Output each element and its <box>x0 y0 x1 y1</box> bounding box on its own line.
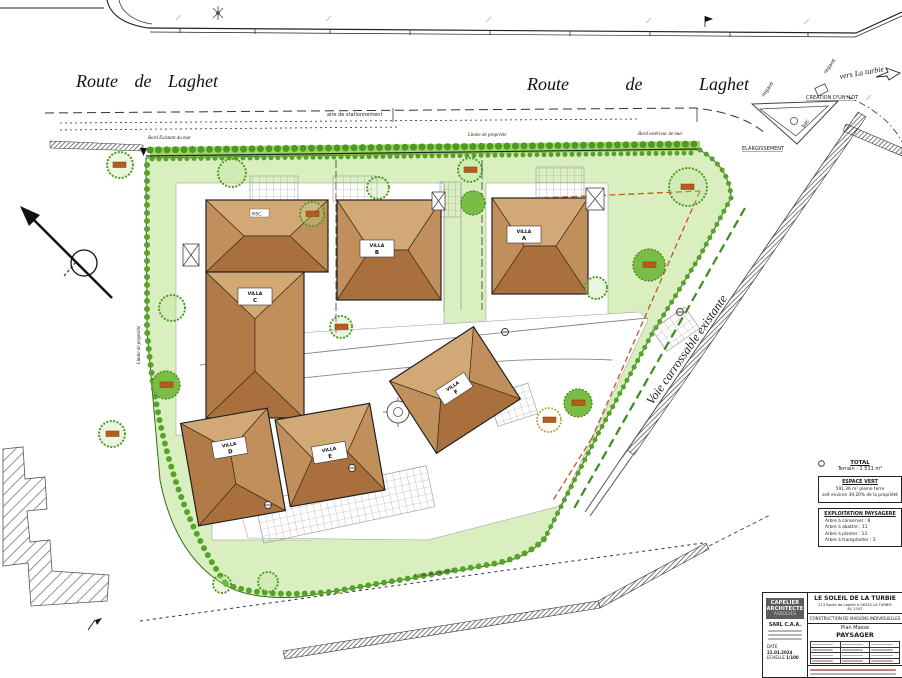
windmill-symbol <box>213 6 223 20</box>
svg-text:C: C <box>253 298 257 304</box>
project-header: LE SOLEIL DE LA TURBIE 213 Route de Lagh… <box>808 593 902 614</box>
villa-e: VILLA E <box>275 403 385 506</box>
legend-item: Arbre à transplanter : 3 <box>825 538 899 543</box>
vers-la-turbie-label: vers La turbie <box>839 64 885 81</box>
north-arrow <box>20 206 112 298</box>
regard-label-2: regard <box>823 58 837 75</box>
route-de-laghet-label-left: Route de Laghet <box>75 71 219 91</box>
villa-b: VILLA B <box>337 200 441 300</box>
svg-text:ELARGISSEMENT: ELARGISSEMENT <box>742 146 785 152</box>
project-ref: AC 1107 <box>809 607 901 611</box>
limite-propriete-left-label: Limite de propriété <box>137 325 142 365</box>
bord-existant-label: Bord Existant du mur <box>148 136 191 141</box>
svg-text:B: B <box>375 250 379 256</box>
svg-text:VILLA: VILLA <box>248 291 263 297</box>
svg-text:CREATION D'UN ILOT: CREATION D'UN ILOT <box>806 95 859 101</box>
phone-line <box>768 638 802 640</box>
villa-a-label: VILLA A <box>507 226 541 243</box>
existing-building-hatch <box>3 447 109 606</box>
flag-symbol <box>705 16 713 27</box>
title-block: CAPELIER ARCHITECTE ASSOCIES SARL C.A.A.… <box>762 592 902 678</box>
legend-panel: TOTAL Terrain : 1 511 m² ESPACE VERT 591… <box>818 460 902 552</box>
project-type: CONSTRUCTION DE MAISONS INDIVIDUELLES <box>808 614 902 624</box>
svg-text:VILLA: VILLA <box>370 243 385 249</box>
address-line <box>768 630 802 632</box>
villa-c-label: VILLA C <box>238 288 272 305</box>
date-scale-cell: DATE 21.01.2024 ECHELLE 1/100 <box>767 644 803 661</box>
site-plan-page: Route de Laghet Route de Laghet aire de … <box>0 0 902 678</box>
revision-row <box>811 659 899 664</box>
legend-item: Arbre à abattre : 11 <box>825 525 899 530</box>
legend-total-value: Terrain : 1 511 m² <box>818 466 902 472</box>
villa-a: VILLA A <box>492 198 588 294</box>
limite-propriete-top-label: Limite de propriété <box>467 133 507 138</box>
legend-item: Arbre à conserver : 8 <box>825 519 899 524</box>
project-column: LE SOLEIL DE LA TURBIE 213 Route de Lagh… <box>808 593 902 677</box>
regard-square-symbol <box>815 84 828 96</box>
route-de-laghet-label-right: Route de Laghet <box>526 74 750 94</box>
drawing-name: Plan Masse PAYSAGER <box>808 624 902 640</box>
aire-stationnement-label: aire de stationnement <box>327 112 382 118</box>
svg-text:A: A <box>522 236 527 242</box>
project-title: LE SOLEIL DE LA TURBIE <box>809 595 901 602</box>
parking-boundary-lines <box>45 108 766 134</box>
legend-item: Arbre à planter : 13 <box>825 532 899 537</box>
regard-circle-symbol <box>791 118 798 125</box>
fine-print <box>808 665 902 677</box>
site-plan-drawing: Route de Laghet Route de Laghet aire de … <box>0 0 902 678</box>
address-line <box>768 634 802 636</box>
wall-end-marker <box>140 148 147 156</box>
elargissement: ELARGISSEMENT <box>742 146 785 152</box>
regard-label-1: regard <box>761 81 775 98</box>
survey-flag <box>88 618 102 630</box>
espace-vert-title: ESPACE VERT <box>821 480 899 485</box>
svg-text:VILLA: VILLA <box>517 229 532 235</box>
creation-ilot: CREATION D'UN ILOT <box>806 95 859 101</box>
espace-vert-line2: soit environ 39,20% de la propriété <box>821 493 899 499</box>
company-name: SARL C.A.A. <box>769 623 801 628</box>
revision-table <box>810 641 900 664</box>
villa-b-label: VILLA B <box>360 240 394 257</box>
existing-wall-strip <box>50 141 143 151</box>
architect-column: CAPELIER ARCHITECTE ASSOCIES SARL C.A.A.… <box>763 593 808 677</box>
tree-transplant-icon <box>818 460 825 467</box>
exploitation-paysagere-box: EXPLOITATION PAYSAGERE Arbre à conserver… <box>818 508 902 548</box>
exploitation-title: EXPLOITATION PAYSAGERE <box>821 512 899 517</box>
espace-vert-box: ESPACE VERT 591,36 m² pleine terre soit … <box>818 476 902 503</box>
architect-logo: CAPELIER ARCHITECTE ASSOCIES <box>766 598 804 619</box>
legend-total: TOTAL Terrain : 1 511 m² <box>818 460 902 472</box>
pool-label: PISC. <box>252 212 262 217</box>
bord-exterieur-label: Bord extérieur de mur <box>638 132 682 137</box>
